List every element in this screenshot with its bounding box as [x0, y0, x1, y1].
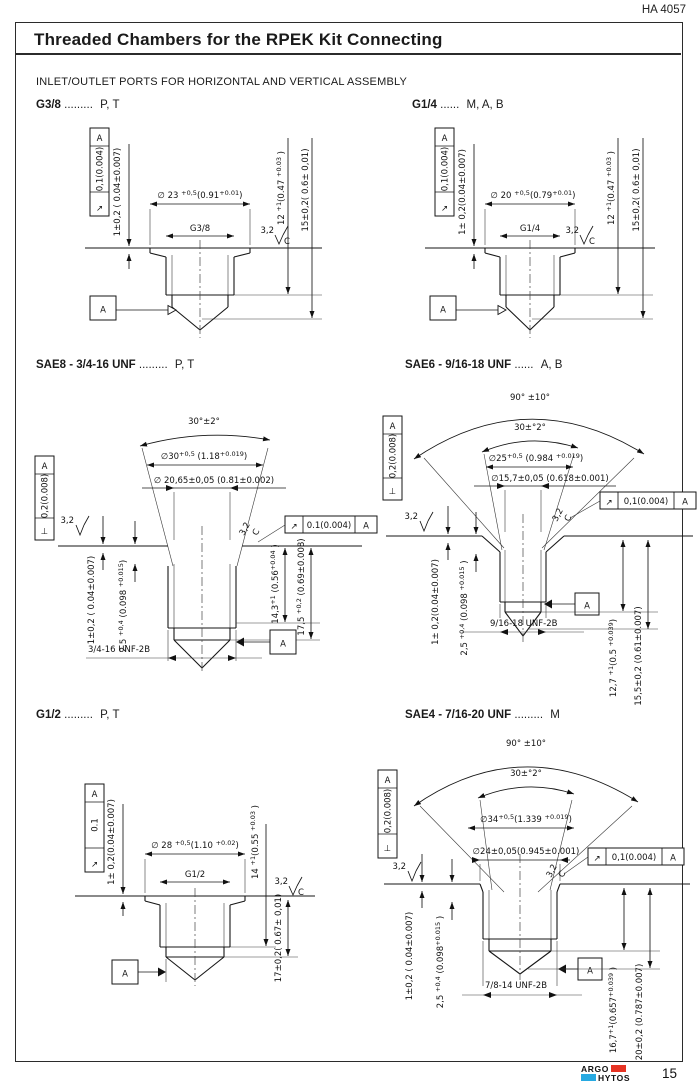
g38-dim-dia23: ∅ 23 +0,5(0.91+0.01) — [150, 189, 250, 245]
svg-text:30±°2°: 30±°2° — [510, 769, 542, 779]
section-title-sae6: SAE6 - 9/16-18 UNF ...... A, B — [405, 359, 562, 371]
svg-text:A: A — [122, 970, 128, 980]
svg-text:A: A — [670, 854, 676, 864]
sae4-roughness-cone: 3,2 C — [545, 863, 569, 880]
page-number: 15 — [662, 1066, 677, 1081]
svg-text:3/4-16 UNF-2B: 3/4-16 UNF-2B — [88, 645, 150, 655]
section-title-g12: G1/2 ......... P, T — [36, 709, 120, 721]
svg-text:0.1(0.004): 0.1(0.004) — [307, 521, 351, 531]
svg-text:14 +1(0.55 +0.03 ): 14 +1(0.55 +0.03 ) — [249, 805, 261, 879]
g38-dim-thread: G3/8 — [166, 224, 234, 236]
svg-text:∅ 23 +0,5(0.91+0.01): ∅ 23 +0,5(0.91+0.01) — [158, 189, 243, 201]
g14-fcf-frame: A 0,1(0.004) ↗ — [435, 128, 454, 216]
svg-text:1±0,2 ( 0.04±0.007): 1±0,2 ( 0.04±0.007) — [405, 912, 415, 1000]
sae8-datum-triangle-icon — [236, 638, 244, 647]
section-title-g38: G3/8 ......... P, T — [36, 99, 120, 111]
svg-text:2,5 +0,4 (0.098 +0.015 ): 2,5 +0,4 (0.098 +0.015 ) — [458, 560, 470, 655]
svg-text:A: A — [682, 498, 688, 508]
page-title: Threaded Chambers for the RPEK Kit Conne… — [15, 22, 681, 50]
svg-text:3,2: 3,2 — [60, 516, 74, 526]
svg-text:G3/8: G3/8 — [190, 224, 210, 234]
g14-fcf-arrow-icon: ↗ — [441, 204, 448, 214]
sae6-roughness-cone: 3,2 C — [551, 507, 575, 524]
sae8-datum-flag: A — [236, 630, 296, 654]
svg-text:17±0,2( 0.67± 0,01): 17±0,2( 0.67± 0,01) — [274, 894, 284, 982]
logo-argo-text: ARGO — [581, 1065, 609, 1073]
sae4-runout-arrow-icon: ↗ — [593, 854, 600, 864]
svg-text:∅25+0,5 (0.984 +0.019): ∅25+0,5 (0.984 +0.019) — [489, 452, 583, 464]
sae6-thread-callout: 9/16-18 UNF-2B — [462, 604, 584, 635]
sae4-drawing: 90° ±10° 30±°2° ∅34+0,5(1.339 +0.019) ∅2… — [378, 724, 700, 1064]
svg-text:G1/2: G1/2 — [185, 870, 205, 880]
svg-text:16,7+1(0.657+0.039 ): 16,7+1(0.657+0.039 ) — [607, 967, 619, 1053]
svg-text:90° ±10°: 90° ±10° — [510, 393, 550, 403]
sae8-fcf-perpendicularity: A 0,2(0.008) ⊥ — [35, 456, 54, 540]
svg-text:A: A — [587, 967, 593, 977]
sae8-roughness-cone: 3,2 C — [238, 521, 263, 538]
g14-roughness-symbol: 3,2 C — [565, 226, 595, 247]
g12-drawing: A 0.1 ↗ 1± 0,2(0.04±0.007) ∅ 28 +0,5(1.1… — [30, 724, 380, 1016]
svg-text:A: A — [280, 640, 286, 650]
sae8-dims-left: 1±0,2 ( 0.04±0.007) 2,5 +0,4 (0.098 +0.0… — [87, 516, 135, 652]
sae6-perpendicular-icon: ⊥ — [389, 487, 396, 497]
svg-text:0,2(0.008): 0,2(0.008) — [41, 474, 51, 518]
svg-text:∅ 28 +0,5(1.10 +0.02): ∅ 28 +0,5(1.10 +0.02) — [151, 839, 239, 851]
g12-datum-triangle-icon — [158, 968, 166, 977]
logo-cyan-block — [581, 1074, 596, 1081]
sae8-dim-dia30: ∅30+0,5 (1.18+0.019) — [147, 450, 263, 465]
svg-text:C: C — [557, 869, 569, 879]
svg-text:3,2: 3,2 — [551, 507, 566, 524]
svg-text:14,3+1 (0.56+0.04 ): 14,3+1 (0.56+0.04 ) — [269, 544, 281, 623]
doc-number: HA 4057 — [642, 4, 686, 16]
svg-text:0,1(0.004): 0,1(0.004) — [441, 147, 451, 191]
sae4-part-outline — [384, 854, 690, 980]
g14-depth-dims: 12 +1(0.47 +0.03 ) 15±0,2( 0.6± 0,01) — [532, 138, 653, 319]
svg-text:A: A — [42, 462, 48, 472]
svg-text:15±0,2( 0.6± 0,01): 15±0,2( 0.6± 0,01) — [301, 148, 311, 231]
svg-text:3,2: 3,2 — [260, 226, 274, 236]
section-title-sae8: SAE8 - 3/4-16 UNF ......... P, T — [36, 359, 194, 371]
svg-text:C: C — [563, 513, 575, 523]
g14-part-outline — [425, 240, 655, 338]
g38-fcf-datum: A — [97, 134, 103, 144]
svg-text:G1/4: G1/4 — [520, 224, 540, 234]
svg-text:1± 0,2(0.04±0.007): 1± 0,2(0.04±0.007) — [458, 149, 468, 235]
sae4-dim-dia34: ∅34+0,5(1.339 +0.019) — [468, 813, 574, 828]
g38-datum-flag: A — [90, 296, 176, 320]
svg-text:30°±2°: 30°±2° — [188, 417, 220, 427]
g38-fcf-arrow-icon: ↗ — [96, 204, 103, 214]
svg-text:A: A — [385, 776, 391, 786]
sae4-perpendicular-icon: ⊥ — [384, 844, 391, 854]
g12-fcf-frame: A 0.1 ↗ — [85, 784, 104, 872]
svg-text:1± 0,2(0.04±0.007): 1± 0,2(0.04±0.007) — [107, 799, 117, 885]
g12-dim-17: 17±0,2( 0.67± 0,01) — [224, 894, 298, 982]
svg-text:15±0,2( 0.6± 0,01): 15±0,2( 0.6± 0,01) — [632, 148, 642, 231]
title-box: Threaded Chambers for the RPEK Kit Conne… — [15, 22, 681, 55]
svg-text:A: A — [584, 602, 590, 612]
sae8-perpendicular-icon: ⊥ — [41, 527, 48, 537]
svg-text:A: A — [442, 134, 448, 144]
g38-fcf-frame: A 0,1(0.004) ↗ — [90, 128, 109, 216]
sae8-drawing: 30°±2° ∅30+0,5 (1.18+0.019) ∅ 20,65±0,05… — [30, 376, 378, 678]
svg-text:2,5 +0,4 (0.098 +0.015): 2,5 +0,4 (0.098 +0.015) — [117, 560, 129, 652]
logo-red-block — [611, 1065, 626, 1072]
svg-text:90° ±10°: 90° ±10° — [506, 739, 546, 749]
g14-datum-flag: A — [430, 296, 506, 320]
g12-dim-thread: G1/2 — [160, 870, 230, 882]
svg-text:A: A — [363, 522, 369, 532]
svg-text:1±0,2 ( 0.04±0.007): 1±0,2 ( 0.04±0.007) — [113, 148, 123, 236]
svg-text:0,2(0.008): 0,2(0.008) — [384, 789, 394, 833]
svg-text:3,2: 3,2 — [565, 226, 579, 236]
svg-text:A: A — [92, 790, 98, 800]
g14-drawing: A 0,1(0.004) ↗ 1± 0,2(0.04±0.007) ∅ 20 +… — [375, 114, 700, 356]
sae6-dims-left: 1± 0,2(0.04±0.007) 2,5 +0,4 (0.098 +0.01… — [431, 506, 476, 656]
g38-drawing: A 0,1(0.004) ↗ 1±0,2 ( 0.04±0.007) ∅ 23 … — [30, 114, 360, 356]
sae8-fcf-runout: ↗ 0.1(0.004) A — [258, 516, 377, 542]
svg-text:A: A — [100, 306, 106, 316]
g38-fcf-tol: 0,1(0.004) — [96, 147, 106, 191]
sae6-drawing: 90° ±10° 30±°2° ∅25+0,5 (0.984 +0.019) ∅… — [378, 374, 700, 706]
g12-dim-14: 14 +1(0.55 +0.03 ) — [230, 805, 276, 947]
g12-dim-1mm: 1± 0,2(0.04±0.007) — [107, 799, 123, 916]
g38-roughness-symbol: 3,2 C — [260, 226, 290, 247]
sae6-angle90-dim: 90° ±10° — [414, 393, 644, 548]
svg-text:∅24±0,05(0.945±0.001): ∅24±0,05(0.945±0.001) — [473, 847, 580, 857]
g38-dim-1mm: 1±0,2 ( 0.04±0.007) — [113, 144, 129, 269]
sae6-datum-triangle-icon — [544, 600, 552, 609]
sae4-roughness-left: 3,2 — [392, 862, 421, 881]
svg-text:1±0,2 ( 0.04±0.007): 1±0,2 ( 0.04±0.007) — [87, 556, 97, 644]
svg-text:3,2: 3,2 — [404, 512, 418, 522]
sae6-angle30-dim: 30±°2° — [482, 423, 578, 550]
svg-text:C: C — [251, 527, 263, 537]
sae6-dim-dia157: ∅15,7±0,05 (0.618±0.001) — [474, 474, 616, 532]
section-title-g14: G1/4 ...... M, A, B — [412, 99, 504, 111]
svg-text:A: A — [390, 422, 396, 432]
svg-text:20±0,2 (0.787±0.007): 20±0,2 (0.787±0.007) — [635, 964, 645, 1061]
svg-text:0.1: 0.1 — [91, 818, 101, 832]
svg-text:∅34+0,5(1.339 +0.019): ∅34+0,5(1.339 +0.019) — [480, 813, 572, 825]
svg-text:A: A — [440, 306, 446, 316]
sae4-dims-left: 1±0,2 ( 0.04±0.007) 2,5 +0,4 (0.098+0.01… — [405, 854, 452, 1008]
svg-text:3,2: 3,2 — [238, 521, 253, 538]
svg-text:0,1(0.004): 0,1(0.004) — [612, 853, 656, 863]
sae6-dim-dia25: ∅25+0,5 (0.984 +0.019) — [486, 452, 583, 467]
g14-dim-1mm: 1± 0,2(0.04±0.007) — [458, 144, 474, 269]
sae8-dims-right: 14,3+1 (0.56+0.04 ) 17,5 +0,2 (0.69±0.00… — [230, 538, 320, 640]
svg-text:∅15,7±0,05 (0.618±0.001): ∅15,7±0,05 (0.618±0.001) — [491, 474, 609, 484]
svg-text:17,5 +0,2 (0.69±0.008): 17,5 +0,2 (0.69±0.008) — [295, 538, 307, 635]
g12-fcf-arrow-icon: ↗ — [91, 860, 98, 870]
svg-text:1± 0,2(0.04±0.007): 1± 0,2(0.04±0.007) — [431, 559, 441, 645]
sae4-fcf-perpendicularity: A 0,2(0.008) ⊥ — [378, 770, 397, 858]
svg-text:3,2: 3,2 — [392, 862, 406, 872]
svg-text:0,1(0.004): 0,1(0.004) — [624, 497, 668, 507]
svg-text:30±°2°: 30±°2° — [514, 423, 546, 433]
svg-text:∅ 20 +0,5(0.79+0.01): ∅ 20 +0,5(0.79+0.01) — [491, 189, 576, 201]
svg-text:12,7 +1(0.5 +0.039): 12,7 +1(0.5 +0.039) — [607, 619, 619, 697]
argo-hytos-logo: ARGO HYTOS — [581, 1064, 630, 1082]
page-subtitle: INLET/OUTLET PORTS FOR HORIZONTAL AND VE… — [36, 76, 407, 88]
svg-text:0,2(0.008): 0,2(0.008) — [389, 434, 399, 478]
g12-dim-dia28: ∅ 28 +0,5(1.10 +0.02) — [145, 839, 245, 893]
catalog-page: HA 4057 Threaded Chambers for the RPEK K… — [0, 0, 700, 1088]
svg-text:∅ 20,65±0,05 (0.81±0.002): ∅ 20,65±0,05 (0.81±0.002) — [154, 476, 274, 486]
svg-text:3,2: 3,2 — [545, 863, 560, 880]
svg-text:12 +1(0.47 +0.03 ): 12 +1(0.47 +0.03 ) — [275, 151, 287, 225]
svg-text:15,5±0,2 (0.61±0.007): 15,5±0,2 (0.61±0.007) — [634, 606, 644, 705]
section-title-sae4: SAE4 - 7/16-20 UNF ......... M — [405, 709, 560, 721]
svg-text:C: C — [589, 237, 595, 247]
svg-text:2,5 +0,4 (0.098+0.015 ): 2,5 +0,4 (0.098+0.015 ) — [434, 916, 446, 1008]
svg-text:3,2: 3,2 — [274, 877, 288, 887]
sae6-fcf-perpendicularity: A 0,2(0.008) ⊥ — [383, 416, 402, 500]
svg-text:C: C — [284, 237, 290, 247]
sae6-runout-arrow-icon: ↗ — [605, 498, 612, 508]
g12-datum-flag: A — [112, 960, 166, 984]
svg-text:12 +1(0.47 +0.03 ): 12 +1(0.47 +0.03 ) — [605, 151, 617, 225]
sae8-runout-arrow-icon: ↗ — [290, 522, 297, 532]
g14-dim-dia20: ∅ 20 +0,5(0.79+0.01) — [485, 189, 575, 245]
g14-dim-thread: G1/4 — [500, 224, 560, 236]
logo-hytos-text: HYTOS — [598, 1074, 630, 1082]
svg-text:7/8-14 UNF-2B: 7/8-14 UNF-2B — [485, 981, 547, 991]
g38-part-outline — [85, 240, 322, 338]
sae6-roughness-left: 3,2 — [404, 512, 433, 531]
svg-text:∅30+0,5 (1.18+0.019): ∅30+0,5 (1.18+0.019) — [161, 450, 247, 462]
sae8-roughness-left: 3,2 — [60, 516, 89, 535]
g14-datum-triangle-icon — [498, 306, 506, 315]
sae8-angle-dim: 30°±2° — [140, 417, 270, 566]
sae6-fcf-runout: ↗ 0,1(0.004) A — [570, 492, 696, 518]
svg-text:9/16-18 UNF-2B: 9/16-18 UNF-2B — [490, 619, 558, 629]
